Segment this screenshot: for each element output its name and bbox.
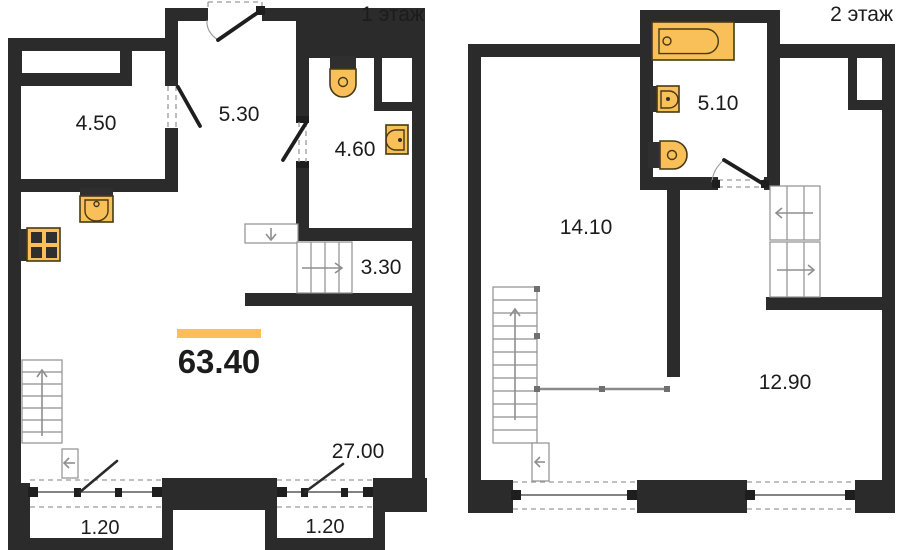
staircase-f1 (22, 360, 78, 478)
balcony-label-left: 1.20 (81, 517, 120, 539)
stair-railing (534, 286, 670, 392)
bathroom-door-f1 (283, 116, 309, 168)
room-label-27-00: 27.00 (332, 440, 385, 463)
toilet-icon-f2 (648, 141, 687, 169)
closet-niche (22, 51, 120, 73)
balcony-label-right: 1.20 (306, 516, 345, 538)
window-f2-right (745, 482, 855, 509)
bathtub-icon (652, 22, 734, 60)
room-label-14-10: 14.10 (560, 216, 613, 239)
floor-plan-drawing: 1 этаж 4.50 5.30 4.60 3.30 27.00 1.20 1.… (0, 0, 900, 550)
total-area-label: 63.40 (178, 343, 261, 380)
bathroom-door-f2 (712, 160, 769, 188)
floor2-plan: 2 этаж 5.10 14.10 12.90 (468, 3, 895, 513)
toilet-icon-f1 (330, 56, 356, 97)
kitchen-sink-icon (80, 188, 113, 222)
washbasin-icon-f1 (386, 125, 408, 154)
washbasin-icon-f2 (650, 86, 679, 112)
storage-room-door (168, 86, 200, 128)
floor1-plan: 1 этаж 4.50 5.30 4.60 3.30 27.00 1.20 1.… (8, 2, 427, 550)
window-f2-left (511, 482, 637, 509)
staircase-f2 (493, 287, 549, 481)
entrance-door (207, 2, 265, 40)
stove-icon (19, 228, 60, 261)
room-label-12-90: 12.90 (759, 371, 812, 394)
floor1-title: 1 этаж (361, 3, 424, 26)
room-label-4-50: 4.50 (76, 112, 117, 135)
room-label-5-10: 5.10 (698, 92, 739, 115)
floor2-title: 2 этаж (830, 3, 893, 26)
room-label-5-30: 5.30 (219, 103, 260, 126)
window-balcony-left (28, 461, 162, 507)
wardrobe-top (770, 186, 820, 240)
total-area-highlight-bar (177, 329, 261, 338)
room-label-3-30: 3.30 (361, 256, 402, 279)
window-balcony-right (277, 464, 373, 507)
wardrobe-bottom (770, 242, 820, 297)
floor-plan-page: 1 этаж 4.50 5.30 4.60 3.30 27.00 1.20 1.… (0, 0, 900, 550)
room-label-4-60: 4.60 (335, 138, 376, 161)
